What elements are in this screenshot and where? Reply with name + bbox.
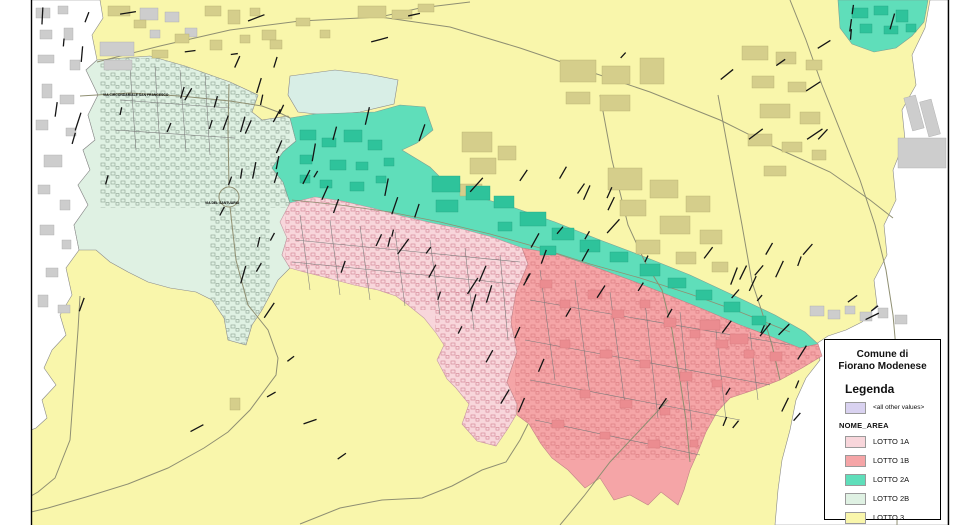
- legend-label-lotto1b: LOTTO 1B: [873, 456, 909, 465]
- street-label-santuario: VIA DEL SANTUARIO: [205, 201, 240, 205]
- legend-row-lotto2b: LOTTO 2B: [845, 493, 940, 505]
- legend-title-line2: Fiorano Modenese: [825, 361, 940, 373]
- legend-label-lotto2a: LOTTO 2A: [873, 475, 909, 484]
- legend-panel: Comune di Fiorano Modenese Legenda <all …: [824, 339, 941, 520]
- legend-row-lotto3: LOTTO 3: [845, 512, 940, 524]
- legend-row-lotto1b: LOTTO 1B: [845, 455, 940, 467]
- legend-title: Comune di Fiorano Modenese: [825, 349, 940, 373]
- legend-label-lotto3: LOTTO 3: [873, 513, 904, 522]
- legend-row-lotto2a: LOTTO 2A: [845, 474, 940, 486]
- legend-label-other-values: <all other values>: [873, 404, 924, 411]
- legend-swatch-other-values: [845, 402, 866, 414]
- legend-heading: Legenda: [845, 382, 940, 396]
- street-label-circondariale: VIA CIRCONDARIALE SAN FRANCESCO: [103, 93, 169, 97]
- legend-swatch-lotto1a: [845, 436, 866, 448]
- legend-swatch-lotto3: [845, 512, 866, 524]
- legend-field-name: NOME_AREA: [839, 421, 940, 430]
- legend-label-lotto1a: LOTTO 1A: [873, 437, 909, 446]
- map-document: VIA CIRCONDARIALE SAN FRANCESCO VIA DEL …: [0, 0, 978, 525]
- legend-title-line1: Comune di: [825, 349, 940, 361]
- legend-swatch-lotto1b: [845, 455, 866, 467]
- legend-row-other-values: <all other values>: [845, 402, 940, 414]
- legend-label-lotto2b: LOTTO 2B: [873, 494, 909, 503]
- legend-swatch-lotto2b: [845, 493, 866, 505]
- legend-swatch-lotto2a: [845, 474, 866, 486]
- legend-row-lotto1a: LOTTO 1A: [845, 436, 940, 448]
